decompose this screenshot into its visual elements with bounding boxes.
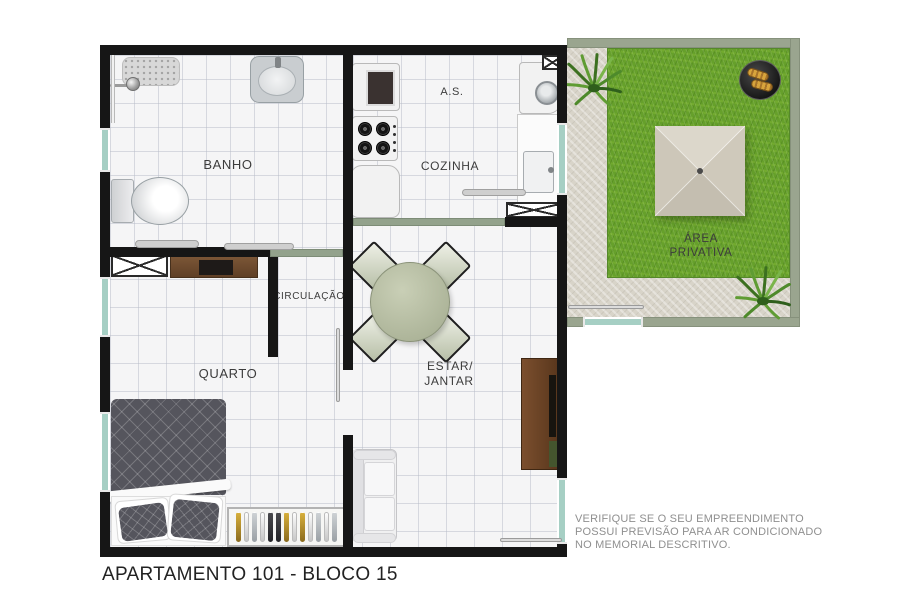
disclaimer-line-2: POSSUI PREVISÃO PARA AR CONDICIONADO xyxy=(575,526,822,539)
clothes-icon xyxy=(252,512,257,542)
grill-food-icon xyxy=(750,78,774,92)
disclaimer-line-3: NO MEMORIAL DESCRITIVO. xyxy=(575,539,822,552)
clothes-icon xyxy=(284,512,289,542)
window-quarto-2 xyxy=(100,412,110,492)
clothes-icon xyxy=(324,512,329,542)
stove-knob-icon xyxy=(393,141,396,144)
washer-door-icon xyxy=(535,81,559,105)
room-label-cozinha: COZINHA xyxy=(421,159,479,173)
banho-sliding-door xyxy=(270,249,343,257)
toilet-icon xyxy=(131,177,189,225)
window-cozinha xyxy=(557,123,567,195)
pillow-icon xyxy=(118,502,168,542)
sliding-panel xyxy=(224,243,294,250)
fridge-icon xyxy=(350,165,400,218)
window-banho xyxy=(100,128,110,172)
bed-icon xyxy=(111,399,226,546)
sofa-back xyxy=(353,450,364,541)
room-label-servico: A.S. xyxy=(440,86,463,98)
tv-icon xyxy=(549,375,556,437)
sliding-panel xyxy=(135,240,199,248)
room-label-area-privativa-2: PRIVATIVA xyxy=(670,247,733,259)
room-label-banho: BANHO xyxy=(203,157,252,172)
wall-cozinha-bottom xyxy=(505,217,567,227)
dresser-tv-icon xyxy=(170,256,258,278)
plan-title: APARTAMENTO 101 - BLOCO 15 xyxy=(102,564,398,586)
burner-icon xyxy=(376,122,390,136)
wardrobe-items xyxy=(236,512,337,542)
wall-estar-lower xyxy=(343,435,353,557)
wall-top xyxy=(100,45,567,55)
shower-glass-icon xyxy=(111,53,115,123)
faucet-icon xyxy=(548,167,554,173)
room-label-estar-2: JANTAR xyxy=(424,374,473,388)
wardrobe-symbol xyxy=(111,254,168,277)
clothes-icon xyxy=(236,512,241,542)
plant-icon xyxy=(564,50,624,112)
stove-icon xyxy=(352,116,398,161)
wall-banho-cozinha xyxy=(343,45,353,370)
shower-head-icon xyxy=(126,77,140,91)
rack-decor xyxy=(549,441,557,467)
clothes-icon xyxy=(316,512,321,542)
burner-icon xyxy=(376,141,390,155)
clothes-icon xyxy=(268,512,273,542)
tv-icon xyxy=(199,260,233,275)
clothes-icon xyxy=(332,512,337,542)
stove-knob-icon xyxy=(393,125,396,128)
disclaimer-text: VERIFIQUE SE O SEU EMPREENDIMENTO POSSUI… xyxy=(575,513,822,552)
privativa-door xyxy=(583,317,643,327)
room-label-area-privativa-1: ÁREA xyxy=(684,233,718,245)
floor-plan: ÁREA PRIVATIVA BANHO A.S. COZINHA xyxy=(0,0,900,600)
pillow-icon xyxy=(170,499,220,542)
oven-door-icon xyxy=(366,70,395,106)
oven-icon xyxy=(352,63,400,111)
faucet-icon xyxy=(275,57,281,68)
clothes-icon xyxy=(300,512,305,542)
plant-icon xyxy=(724,264,802,324)
sofa-cushion xyxy=(364,497,395,531)
door-leaf-entrance xyxy=(500,538,562,542)
bathroom-sink-icon xyxy=(250,56,304,103)
tv-rack-icon xyxy=(521,358,558,470)
gazebo-umbrella-icon xyxy=(655,126,745,216)
wall-bottom xyxy=(100,547,567,557)
cabinet-symbol xyxy=(506,202,562,218)
door-leaf-quarto xyxy=(336,328,340,402)
dining-table-icon xyxy=(370,262,450,342)
disclaimer-line-1: VERIFIQUE SE O SEU EMPREENDIMENTO xyxy=(575,513,822,526)
wardrobe-icon xyxy=(227,507,346,547)
sofa-armrest xyxy=(353,533,396,543)
stove-knob-icon xyxy=(393,133,396,136)
entrance-door xyxy=(557,478,567,544)
sliding-panel xyxy=(462,189,526,196)
clothes-icon xyxy=(244,512,249,542)
window-quarto-1 xyxy=(100,277,110,337)
sofa-armrest xyxy=(353,450,396,460)
burner-icon xyxy=(358,141,372,155)
burner-icon xyxy=(358,122,372,136)
clothes-icon xyxy=(308,512,313,542)
clothes-icon xyxy=(260,512,265,542)
room-label-estar-1: ESTAR/ xyxy=(427,359,473,373)
barbecue-grill-icon xyxy=(739,60,781,100)
sofa-icon xyxy=(352,449,397,542)
kitchen-half-wall xyxy=(353,218,505,226)
room-label-circulacao: CIRCULAÇÃO xyxy=(273,291,345,302)
sofa-cushion xyxy=(364,462,395,496)
clothes-icon xyxy=(276,512,281,542)
stove-knob-icon xyxy=(393,149,396,152)
door-leaf-privativa xyxy=(568,305,644,309)
room-label-quarto: QUARTO xyxy=(199,366,258,381)
privativa-wall-top xyxy=(567,38,800,48)
sink-bowl-icon xyxy=(258,66,296,96)
wall-quarto-right xyxy=(268,247,278,357)
clothes-icon xyxy=(292,512,297,542)
